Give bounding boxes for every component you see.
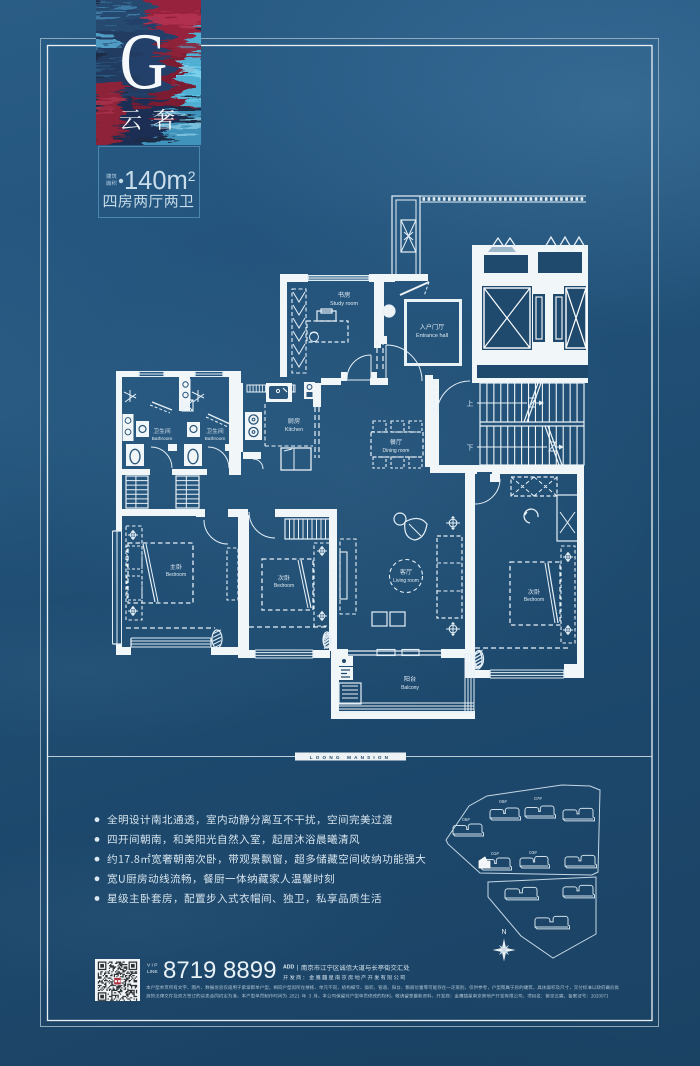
svg-text:G: G — [120, 17, 168, 107]
svg-text:Bathroom: Bathroom — [205, 436, 226, 442]
svg-text:N: N — [501, 929, 506, 936]
svg-text:LINE: LINE — [147, 969, 158, 975]
svg-text:Kitchen: Kitchen — [285, 427, 303, 433]
svg-text:140m2: 140m2 — [124, 167, 196, 195]
svg-text:03#: 03# — [529, 850, 537, 855]
svg-text:Bedroom: Bedroom — [166, 572, 186, 578]
svg-text:05#: 05# — [462, 817, 470, 822]
svg-text:Bedroom: Bedroom — [524, 597, 544, 603]
svg-text:Dining room: Dining room — [383, 448, 410, 454]
svg-text:07#: 07# — [534, 796, 542, 801]
svg-text:01#: 01# — [491, 851, 499, 856]
svg-text:Bathroom: Bathroom — [152, 436, 173, 442]
svg-text:Entrance hall: Entrance hall — [416, 333, 448, 339]
svg-text:Balcony: Balcony — [401, 685, 419, 691]
svg-text:8719 8899: 8719 8899 — [163, 957, 276, 984]
svg-text:Bedroom: Bedroom — [274, 583, 294, 589]
svg-text:ADD: ADD — [283, 965, 294, 971]
svg-text:06#: 06# — [499, 799, 507, 804]
svg-text:Living room: Living room — [393, 578, 419, 584]
svg-text:Study room: Study room — [330, 301, 359, 307]
svg-text:V I P: V I P — [147, 963, 157, 969]
svg-text:LOONG MANSION: LOONG MANSION — [310, 755, 391, 760]
